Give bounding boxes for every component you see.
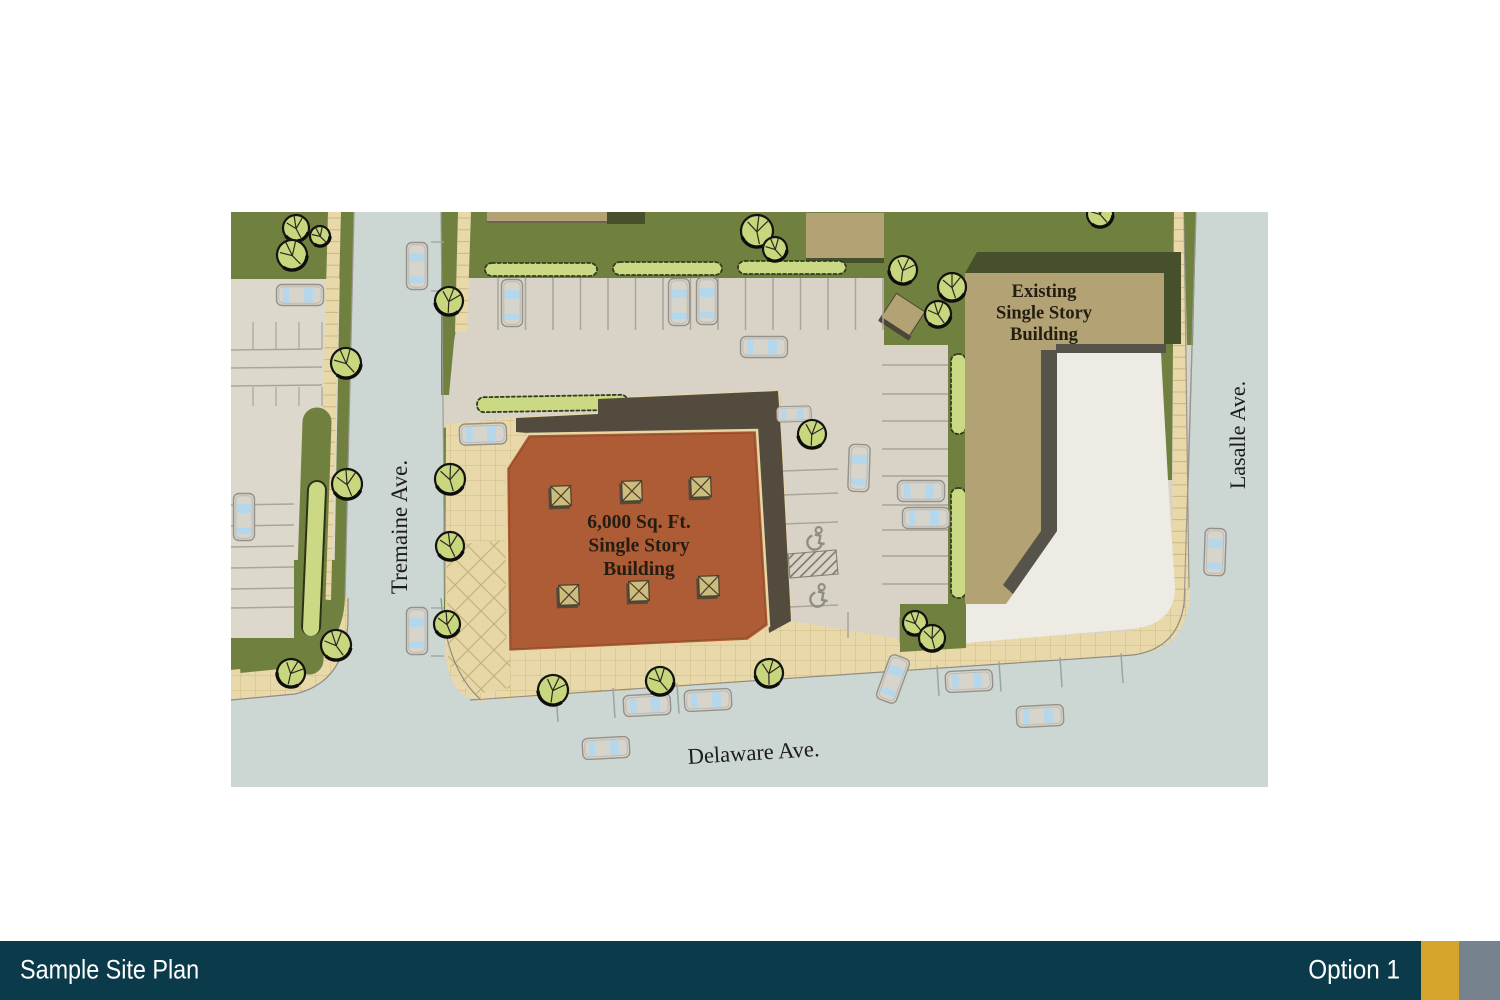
svg-text:Building: Building	[603, 559, 675, 580]
svg-text:6,000 Sq. Ft.: 6,000 Sq. Ft.	[587, 512, 691, 533]
svg-text:Lasalle Ave.: Lasalle Ave.	[1225, 381, 1250, 489]
svg-text:Existing: Existing	[1012, 282, 1078, 302]
svg-text:Building: Building	[1010, 325, 1079, 345]
svg-text:Tremaine Ave.: Tremaine Ave.	[387, 460, 412, 594]
svg-text:Single Story: Single Story	[996, 304, 1093, 324]
svg-text:Single Story: Single Story	[588, 536, 690, 557]
